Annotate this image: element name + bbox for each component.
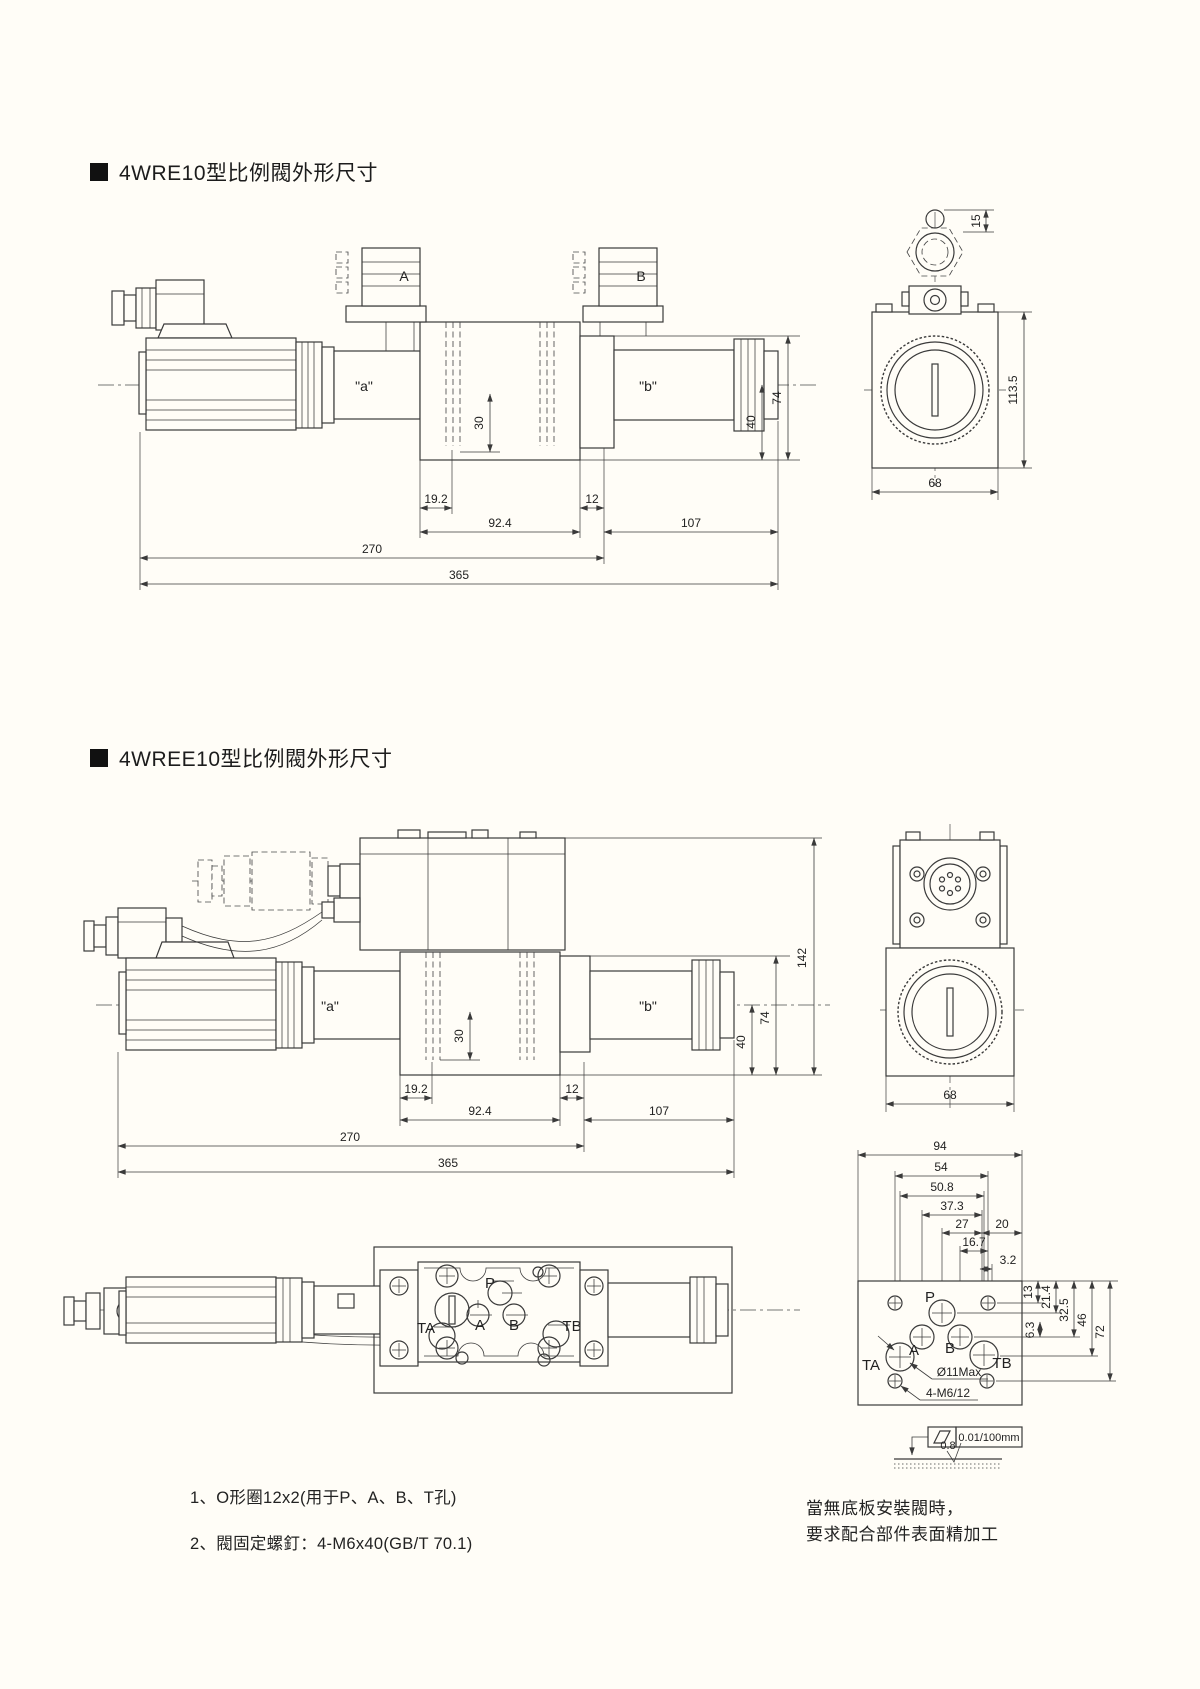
mounting-port-a: A <box>909 1342 919 1359</box>
dim-d2-74: 74 <box>758 1011 772 1025</box>
callout-hole-diameter: Ø11Max <box>937 1365 981 1379</box>
dim-mp-54: 54 <box>934 1160 948 1174</box>
dim-mp-21-4: 21.4 <box>1039 1285 1053 1309</box>
dim-mp-94: 94 <box>933 1139 947 1153</box>
dim-d2-270: 270 <box>340 1130 360 1144</box>
dim-mp-46: 46 <box>1075 1313 1089 1327</box>
dim-d1-107: 107 <box>681 516 701 530</box>
mounting-port-ta: TA <box>862 1357 880 1374</box>
footnotes: 1、O形圈12x2(用于P、A、B、T孔) 2、閥固定螺釘：4-M6x40(GB… <box>190 1484 473 1576</box>
position-b-label: "b" <box>639 998 657 1014</box>
dim-d2-107: 107 <box>649 1104 669 1118</box>
dim-d1-74: 74 <box>770 391 784 405</box>
dim-d1-30: 30 <box>472 416 486 430</box>
roughness-value: 0.8 <box>940 1440 955 1452</box>
drawing-4wree10-end-view: 68 <box>880 824 1024 1112</box>
bottom-view-port-a: A <box>475 1317 485 1334</box>
drawing-4wre10-end-view: 15 113.5 68 <box>864 210 1032 500</box>
dim-d1-92-4: 92.4 <box>488 516 512 530</box>
flatness-tolerance-symbol: 0.01/100mm 0.8 <box>894 1427 1022 1468</box>
flatness-value: 0.01/100mm <box>958 1432 1019 1444</box>
dim-d2-68: 68 <box>943 1088 957 1102</box>
mounting-hole-pattern: 94 54 50.8 37.3 27 20 16.7 3.2 P A B TA … <box>858 1139 1118 1405</box>
position-b-label: "b" <box>639 378 657 394</box>
dim-mp-32-5: 32.5 <box>1057 1298 1071 1322</box>
dim-d1-365: 365 <box>449 568 469 582</box>
mounting-port-p: P <box>925 1289 935 1306</box>
dim-d2-30: 30 <box>452 1029 466 1043</box>
position-a-label: "a" <box>321 998 339 1014</box>
dim-d1-19-2: 19.2 <box>424 492 448 506</box>
drawing-4wree10-side-view: "a" "b" 30 19.2 12 92.4 107 270 365 40 7… <box>84 830 830 1178</box>
solenoid-connector-a: A <box>336 248 426 351</box>
bottom-view-port-p: P <box>485 1275 495 1292</box>
dim-mp-37-3: 37.3 <box>940 1199 964 1213</box>
dim-d1-270: 270 <box>362 542 382 556</box>
connector-a-label: A <box>399 268 409 284</box>
dim-mp-16-7: 16.7 <box>962 1235 986 1249</box>
dim-mp-20: 20 <box>995 1217 1009 1231</box>
connector-b-label: B <box>636 268 645 284</box>
dim-d2-92-4: 92.4 <box>468 1104 492 1118</box>
technical-drawing-canvas: A B "a" "b" 30 19.2 12 <box>0 0 1200 1689</box>
dim-d2-12: 12 <box>565 1082 579 1096</box>
dim-mp-27: 27 <box>955 1217 969 1231</box>
dim-mp-3-2: 3.2 <box>1000 1253 1017 1267</box>
dim-d1-40: 40 <box>744 415 758 429</box>
mounting-port-tb: TB <box>992 1355 1011 1372</box>
dim-d1-68: 68 <box>928 476 942 490</box>
dim-d1-12: 12 <box>585 492 599 506</box>
dim-d1-15: 15 <box>969 214 983 228</box>
installation-note-line1: 當無底板安裝閥時， <box>806 1496 999 1522</box>
installation-note: 當無底板安裝閥時， 要求配合部件表面精加工 <box>806 1496 999 1549</box>
installation-note-line2: 要求配合部件表面精加工 <box>806 1522 999 1548</box>
dim-d2-365: 365 <box>438 1156 458 1170</box>
footnote-1: 1、O形圈12x2(用于P、A、B、T孔) <box>190 1484 473 1508</box>
callout-thread: 4-M6/12 <box>926 1386 970 1400</box>
bottom-view-port-tb: TB <box>562 1318 581 1335</box>
dim-d1-113-5: 113.5 <box>1006 375 1020 404</box>
dim-d2-19-2: 19.2 <box>404 1082 428 1096</box>
dim-mp-50-8: 50.8 <box>930 1180 954 1194</box>
bottom-view-port-ta: TA <box>417 1320 435 1337</box>
bottom-view-port-b: B <box>509 1317 519 1334</box>
footnote-2: 2、閥固定螺釘：4-M6x40(GB/T 70.1) <box>190 1530 473 1554</box>
dim-mp-13: 13 <box>1021 1285 1035 1299</box>
solenoid-connector-b: B <box>573 248 663 336</box>
dim-mp-72: 72 <box>1093 1325 1107 1339</box>
dim-d2-40: 40 <box>734 1035 748 1049</box>
position-a-label: "a" <box>355 378 373 394</box>
dim-d2-142: 142 <box>795 948 809 968</box>
mounting-port-b: B <box>945 1340 955 1357</box>
drawing-4wre10-side-view: A B "a" "b" 30 19.2 12 <box>98 248 818 590</box>
drawing-4wree10-bottom-view: P A B TA TB <box>64 1247 800 1393</box>
dim-mp-6-3: 6.3 <box>1023 1321 1037 1338</box>
